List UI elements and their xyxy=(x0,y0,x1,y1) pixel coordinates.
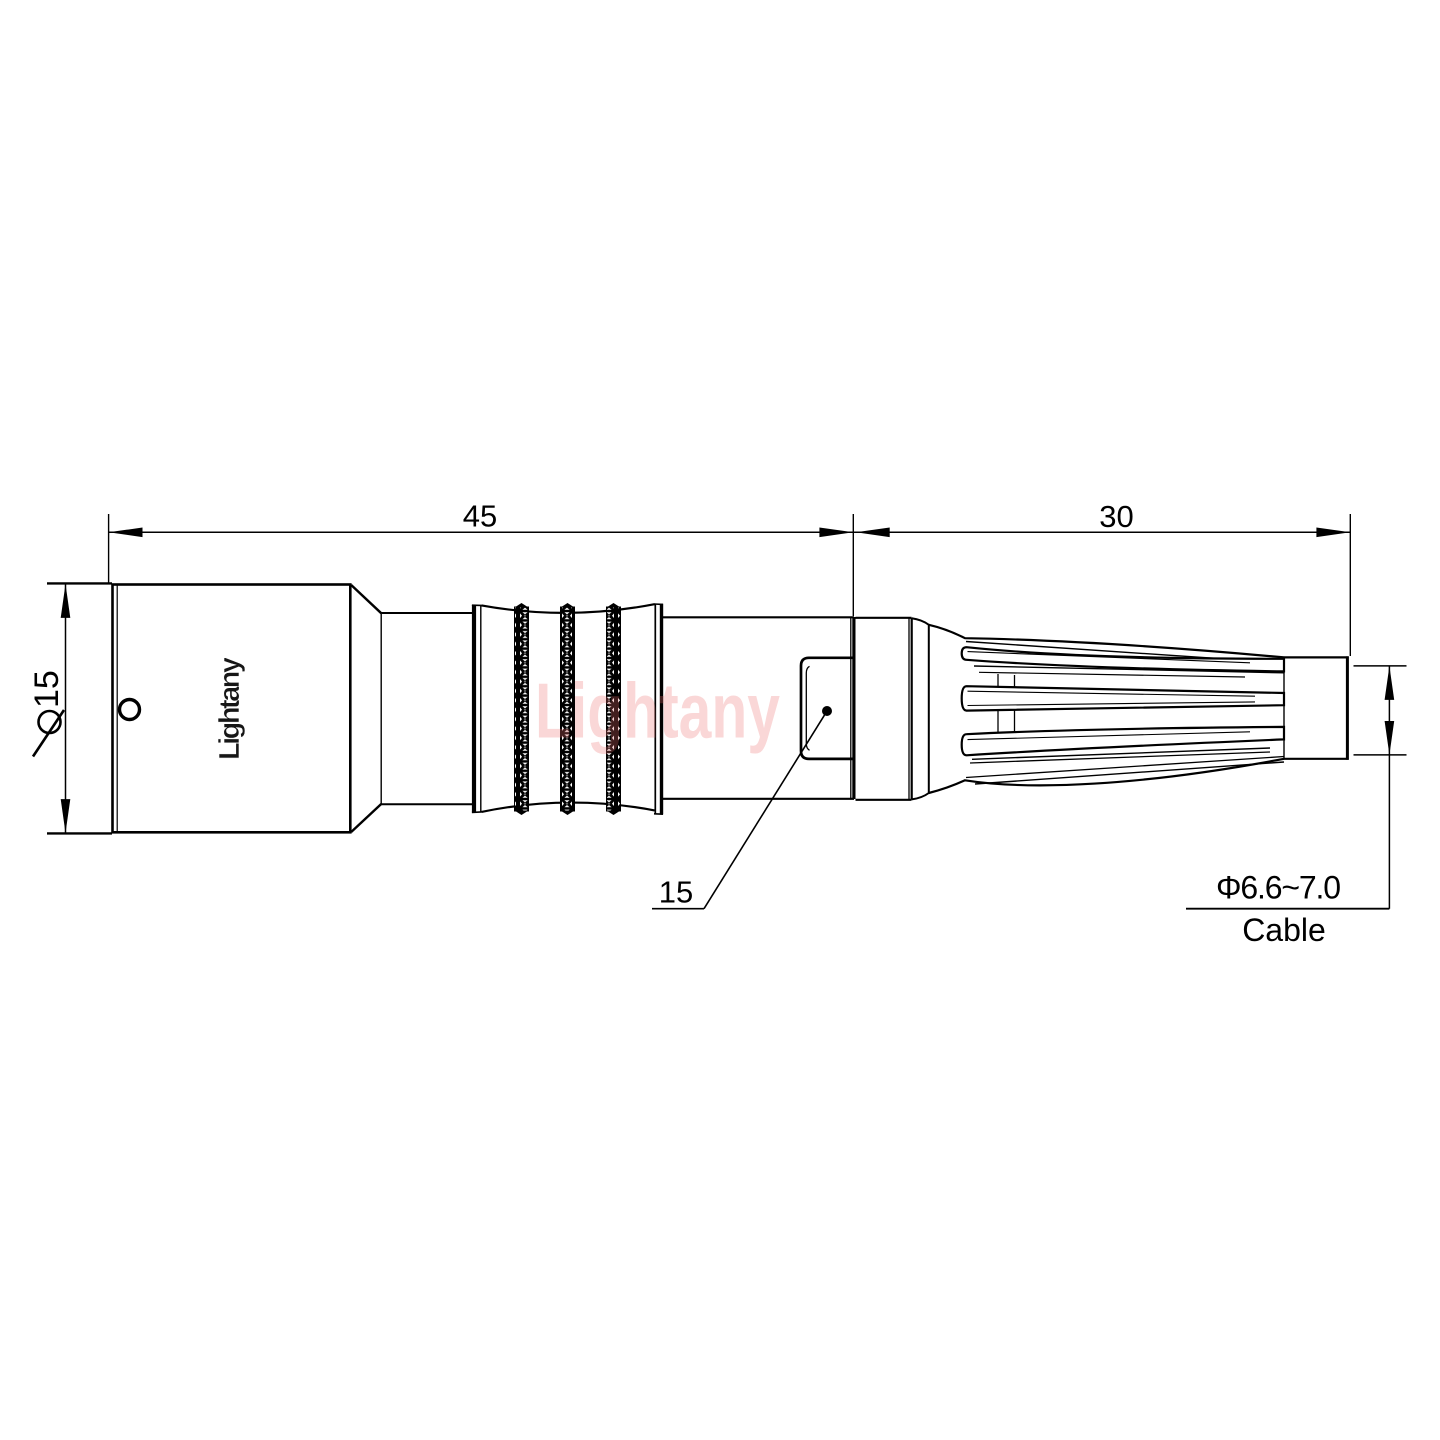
svg-text:Lightany: Lightany xyxy=(214,657,246,760)
svg-text:Cable: Cable xyxy=(1242,912,1326,948)
svg-text:15: 15 xyxy=(659,874,693,909)
svg-text:Φ6.6~7.0: Φ6.6~7.0 xyxy=(1216,870,1341,906)
svg-text:15: 15 xyxy=(28,670,66,708)
svg-text:30: 30 xyxy=(1099,499,1133,534)
svg-text:45: 45 xyxy=(463,499,497,534)
svg-text:Lightany: Lightany xyxy=(535,667,780,755)
